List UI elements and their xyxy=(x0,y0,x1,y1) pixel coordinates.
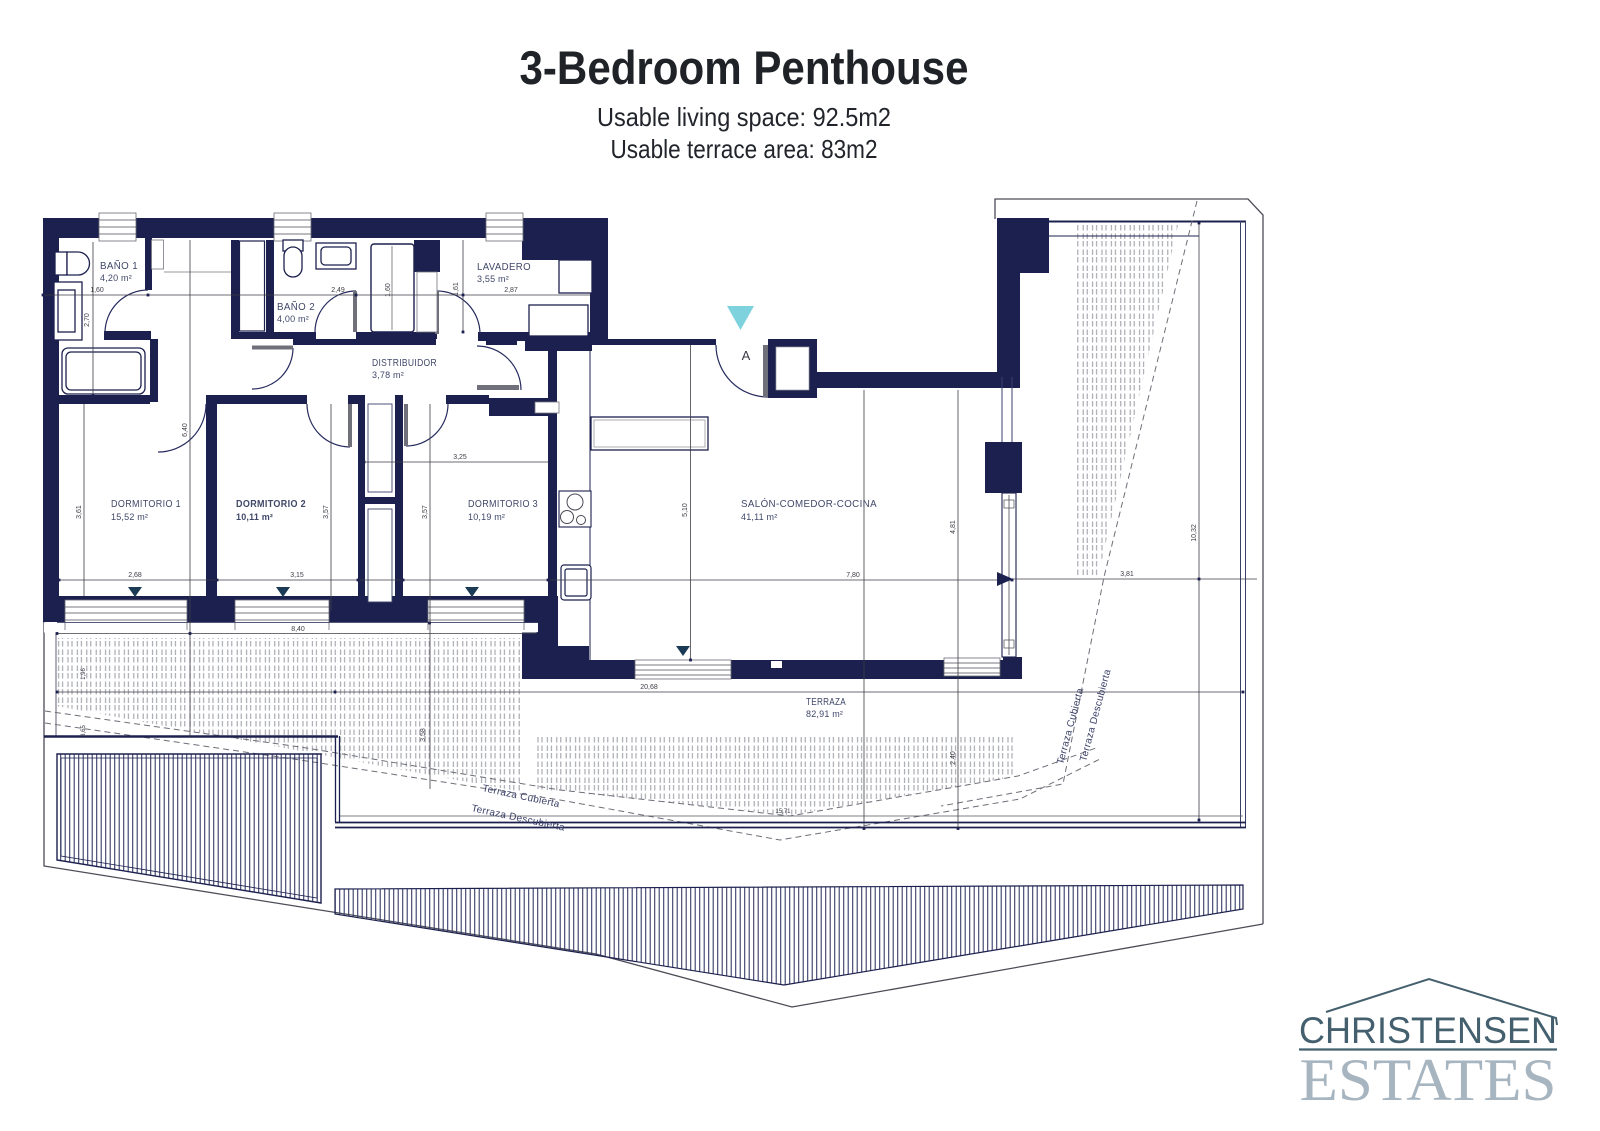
svg-text:3,55 m²: 3,55 m² xyxy=(477,274,509,284)
svg-text:A: A xyxy=(742,348,751,363)
svg-text:5,10: 5,10 xyxy=(682,503,689,517)
svg-text:Usable living space: 92.5m2: Usable living space: 92.5m2 xyxy=(597,102,891,132)
svg-text:DISTRIBUIDOR: DISTRIBUIDOR xyxy=(372,357,437,369)
svg-text:1,60: 1,60 xyxy=(385,283,392,297)
svg-text:BAÑO 2: BAÑO 2 xyxy=(277,300,315,313)
svg-text:2,49: 2,49 xyxy=(331,287,345,294)
svg-text:3,78 m²: 3,78 m² xyxy=(372,370,404,380)
svg-text:DORMITORIO 1: DORMITORIO 1 xyxy=(111,498,181,510)
svg-text:15,52 m²: 15,52 m² xyxy=(111,512,148,522)
svg-text:3,65: 3,65 xyxy=(81,725,87,737)
svg-text:DORMITORIO 2: DORMITORIO 2 xyxy=(236,498,306,510)
svg-text:41,11 m²: 41,11 m² xyxy=(741,512,777,522)
svg-text:10,11 m²: 10,11 m² xyxy=(236,512,273,522)
svg-text:LAVADERO: LAVADERO xyxy=(477,261,531,273)
svg-text:82,91 m²: 82,91 m² xyxy=(806,709,843,719)
svg-text:TERRAZA: TERRAZA xyxy=(806,696,846,708)
svg-text:8,40: 8,40 xyxy=(291,626,305,633)
svg-text:3,57: 3,57 xyxy=(323,505,330,519)
svg-text:6,40: 6,40 xyxy=(182,423,189,437)
svg-text:3,15: 3,15 xyxy=(290,572,304,579)
svg-text:CHRISTENSEN: CHRISTENSEN xyxy=(1299,1010,1557,1051)
svg-text:SALÓN-COMEDOR-COCINA: SALÓN-COMEDOR-COCINA xyxy=(741,497,877,510)
svg-text:7,80: 7,80 xyxy=(846,572,860,579)
svg-text:2,40: 2,40 xyxy=(950,751,957,765)
svg-text:1,61: 1,61 xyxy=(453,282,460,296)
svg-text:2,68: 2,68 xyxy=(128,572,142,579)
svg-text:DORMITORIO 3: DORMITORIO 3 xyxy=(468,498,538,510)
svg-text:ESTATES: ESTATES xyxy=(1300,1047,1557,1113)
svg-text:20,68: 20,68 xyxy=(640,684,658,691)
svg-text:3,57: 3,57 xyxy=(422,505,429,519)
svg-text:2,87: 2,87 xyxy=(504,287,518,294)
svg-text:1,60: 1,60 xyxy=(90,287,104,294)
svg-text:3,81: 3,81 xyxy=(1120,571,1134,578)
svg-text:3,25: 3,25 xyxy=(453,454,467,461)
svg-text:10,32: 10,32 xyxy=(1191,524,1198,542)
svg-text:2,70: 2,70 xyxy=(84,313,91,327)
svg-text:10,19 m²: 10,19 m² xyxy=(468,512,505,522)
svg-text:3-Bedroom Penthouse: 3-Bedroom Penthouse xyxy=(520,41,969,94)
svg-text:3,58: 3,58 xyxy=(420,728,427,742)
svg-text:4,81: 4,81 xyxy=(950,520,957,534)
svg-text:BAÑO 1: BAÑO 1 xyxy=(100,259,138,272)
svg-text:4,00 m²: 4,00 m² xyxy=(277,314,309,324)
svg-text:3,61: 3,61 xyxy=(76,505,83,519)
svg-text:4,20 m²: 4,20 m² xyxy=(100,273,132,283)
svg-text:Usable terrace area: 83m2: Usable terrace area: 83m2 xyxy=(611,134,878,164)
svg-text:1,96: 1,96 xyxy=(81,668,87,680)
svg-text:15,71: 15,71 xyxy=(775,809,791,815)
